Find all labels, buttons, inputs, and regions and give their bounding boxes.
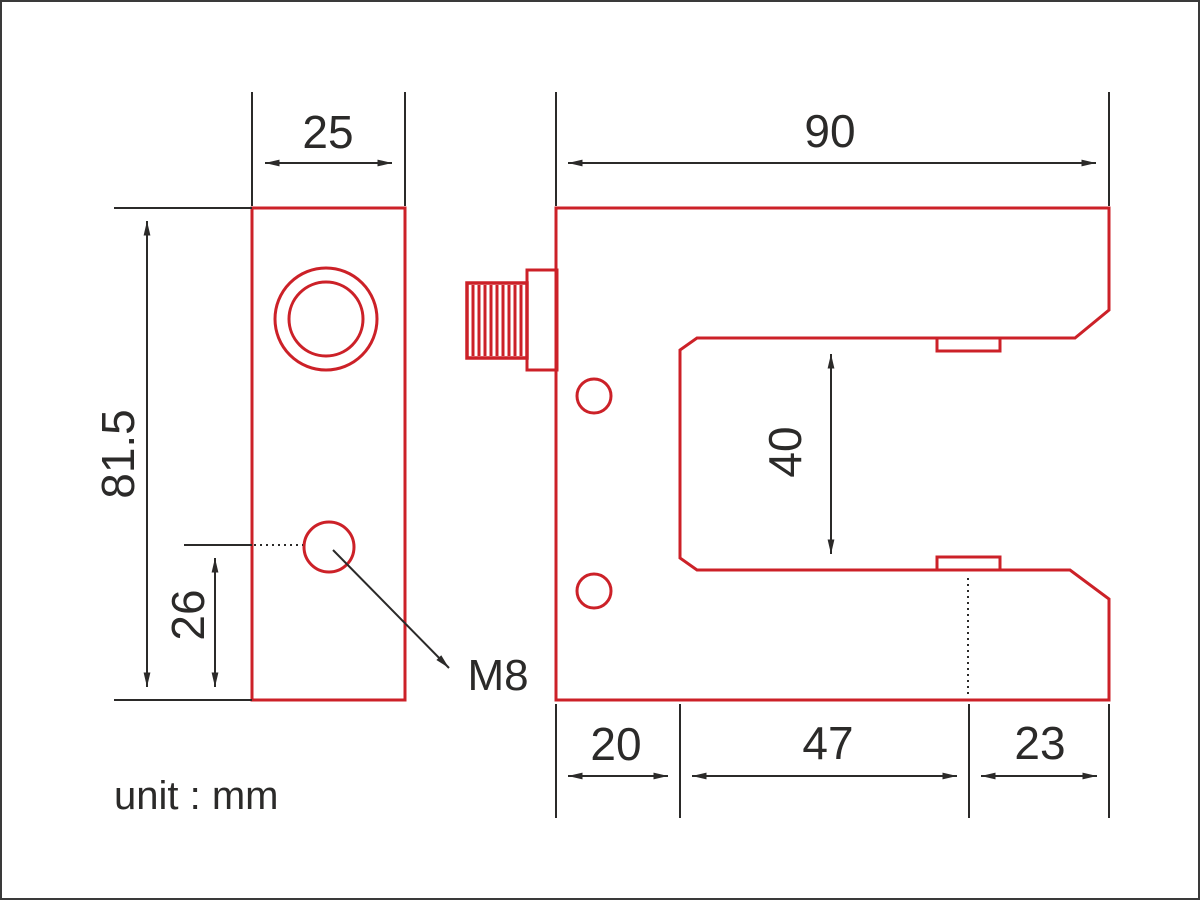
dim-text-front-width: 90 bbox=[804, 108, 855, 154]
m8-leader-line bbox=[333, 550, 449, 668]
front-view-outline bbox=[556, 208, 1109, 700]
dim-text-bottom-middle: 47 bbox=[802, 720, 853, 766]
dimension-linework bbox=[114, 92, 1109, 818]
technical-drawing-page: 25 90 81.5 26 40 20 47 23 M8 unit : mm bbox=[0, 0, 1200, 900]
dim-text-bottom-left: 20 bbox=[590, 721, 641, 767]
dim-text-side-width: 25 bbox=[302, 109, 353, 155]
side-view-boss-inner-circle bbox=[289, 282, 363, 356]
slot-upper-tab bbox=[937, 338, 1000, 351]
part-outlines bbox=[252, 208, 1109, 700]
front-view-hole-bottom bbox=[577, 574, 611, 608]
connector-flange bbox=[527, 270, 557, 370]
front-view-hole-top bbox=[577, 379, 611, 413]
slot-lower-tab bbox=[937, 557, 1000, 570]
dim-text-side-height: 81.5 bbox=[95, 409, 141, 499]
m8-hole-label: M8 bbox=[467, 654, 528, 698]
dim-text-slot-width: 40 bbox=[762, 426, 808, 477]
dim-text-bottom-right: 23 bbox=[1014, 720, 1065, 766]
connector-thread-stripes-icon bbox=[473, 285, 521, 356]
dim-text-hole-offset: 26 bbox=[165, 589, 211, 640]
unit-note: unit : mm bbox=[114, 776, 278, 816]
